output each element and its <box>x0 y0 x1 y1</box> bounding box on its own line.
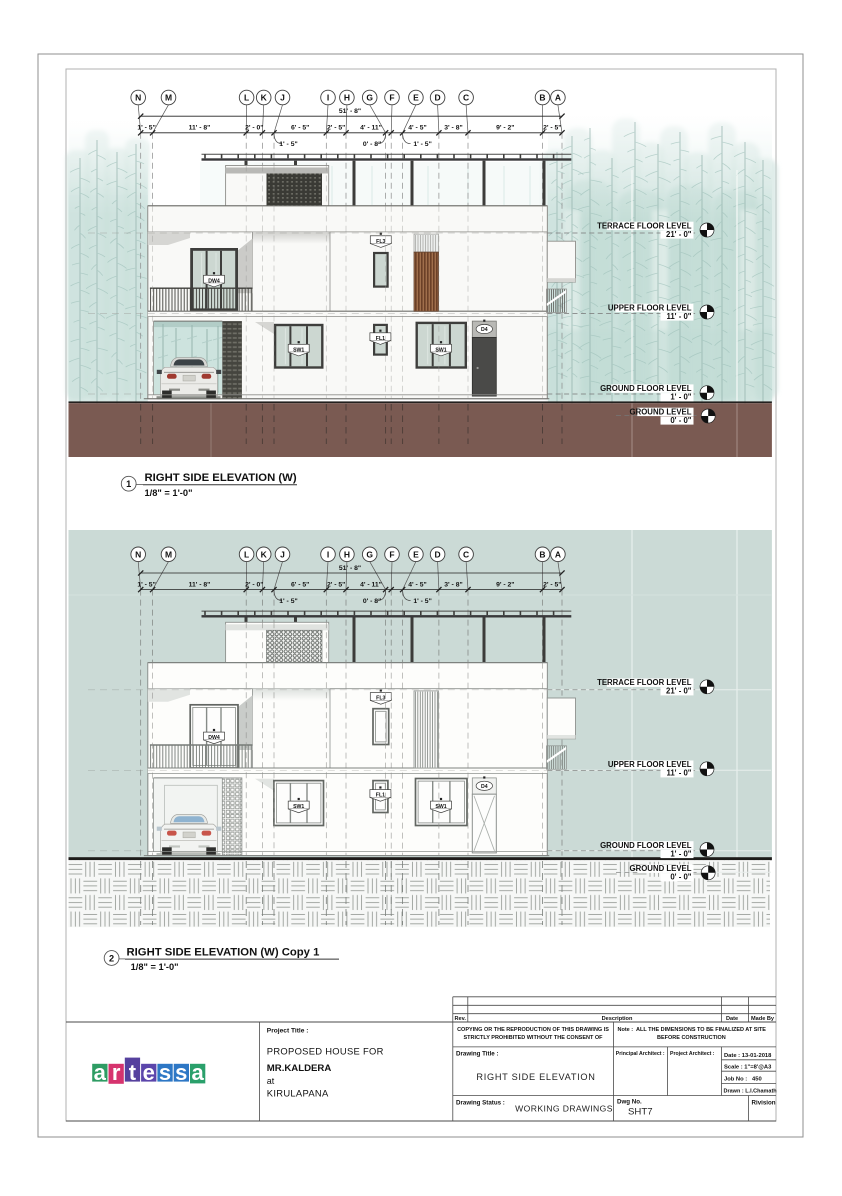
svg-text:4' - 11": 4' - 11" <box>360 581 382 588</box>
svg-text:9' - 2": 9' - 2" <box>496 581 514 588</box>
svg-text:I: I <box>327 549 329 559</box>
svg-text:a: a <box>191 1060 204 1085</box>
svg-text:K: K <box>261 549 268 559</box>
svg-text:2' - 5": 2' - 5" <box>543 125 561 132</box>
svg-text:ALL THE DIMENSIONS TO BE FINAL: ALL THE DIMENSIONS TO BE FINALIZED AT SI… <box>636 1027 766 1033</box>
svg-text:4' - 11": 4' - 11" <box>360 125 382 132</box>
svg-text:WORKING DRAWINGS: WORKING DRAWINGS <box>515 1104 613 1114</box>
svg-text:FL3: FL3 <box>376 696 385 702</box>
svg-text:B: B <box>539 549 545 559</box>
svg-text:1: 1 <box>126 479 131 489</box>
svg-text:2: 2 <box>109 953 114 963</box>
svg-text:Drawing Title :: Drawing Title : <box>456 1051 499 1058</box>
svg-text:DW4: DW4 <box>208 735 220 741</box>
svg-text:K: K <box>261 93 268 103</box>
svg-text:N: N <box>135 93 141 103</box>
svg-text:F: F <box>389 549 394 559</box>
svg-text:0' - 8": 0' - 8" <box>363 598 381 605</box>
svg-text:0' - 8": 0' - 8" <box>363 141 381 148</box>
svg-text:SW1: SW1 <box>435 347 446 353</box>
svg-text:4' - 5": 4' - 5" <box>408 581 426 588</box>
svg-text:Scale : 1"=8'@A3: Scale : 1"=8'@A3 <box>724 1065 772 1071</box>
svg-text:0' - 0": 0' - 0" <box>670 416 691 425</box>
svg-text:51' - 8": 51' - 8" <box>339 565 361 572</box>
svg-text:1' - 5": 1' - 5" <box>413 598 431 605</box>
svg-text:Made By: Made By <box>751 1016 775 1022</box>
svg-text:Drawn : L.I.Chamath: Drawn : L.I.Chamath <box>724 1089 778 1095</box>
svg-text:1' - 5": 1' - 5" <box>279 598 297 605</box>
svg-text:Note :: Note : <box>618 1027 634 1033</box>
svg-text:M: M <box>165 93 172 103</box>
svg-text:4' - 5": 4' - 5" <box>408 125 426 132</box>
svg-text:A: A <box>555 549 561 559</box>
svg-text:1' - 5": 1' - 5" <box>279 141 297 148</box>
svg-text:L: L <box>244 549 249 559</box>
svg-text:3' - 8": 3' - 8" <box>444 125 462 132</box>
svg-text:J: J <box>280 549 285 559</box>
svg-text:G: G <box>366 93 373 103</box>
svg-text:RIGHT SIDE ELEVATION: RIGHT SIDE ELEVATION <box>476 1072 595 1082</box>
svg-text:6' - 5": 6' - 5" <box>291 581 309 588</box>
svg-text:DW4: DW4 <box>208 278 220 284</box>
svg-text:RIGHT SIDE ELEVATION (W) Copy: RIGHT SIDE ELEVATION (W) Copy 1 <box>127 946 320 958</box>
svg-text:0' - 0": 0' - 0" <box>670 873 691 882</box>
svg-text:I: I <box>327 93 329 103</box>
svg-text:11' - 8": 11' - 8" <box>189 125 211 132</box>
svg-text:a: a <box>94 1060 107 1085</box>
svg-text:e: e <box>143 1060 155 1085</box>
svg-text:H: H <box>344 93 350 103</box>
svg-text:Project Architect :: Project Architect : <box>670 1051 715 1057</box>
svg-text:1' - 5": 1' - 5" <box>413 141 431 148</box>
svg-text:FL1: FL1 <box>376 793 385 799</box>
svg-text:Rev.: Rev. <box>455 1016 467 1022</box>
svg-text:2' - 5": 2' - 5" <box>543 581 561 588</box>
svg-text:Date: Date <box>726 1016 738 1022</box>
svg-text:C: C <box>463 93 469 103</box>
svg-text:STRICTLY PROHIBITED WITHOUT TH: STRICTLY PROHIBITED WITHOUT THE CONSENT … <box>463 1035 603 1041</box>
svg-text:D4: D4 <box>481 784 488 790</box>
svg-text:2' - 5": 2' - 5" <box>327 125 345 132</box>
svg-text:Principal Architect :: Principal Architect : <box>616 1051 665 1057</box>
svg-text:H: H <box>344 549 350 559</box>
svg-text:PROPOSED HOUSE FOR: PROPOSED HOUSE FOR <box>267 1046 384 1057</box>
svg-text:C: C <box>463 549 469 559</box>
svg-text:Description: Description <box>602 1016 633 1022</box>
svg-text:SW1: SW1 <box>435 804 446 810</box>
svg-text:SW1: SW1 <box>293 804 304 810</box>
svg-text:3' - 8": 3' - 8" <box>444 581 462 588</box>
svg-text:Rivision: Rivision <box>752 1100 776 1107</box>
svg-text:1' - 5": 1' - 5" <box>137 581 155 588</box>
svg-text:N: N <box>135 549 141 559</box>
svg-text:B: B <box>539 93 545 103</box>
svg-text:L: L <box>244 93 249 103</box>
svg-text:1' - 0": 1' - 0" <box>670 849 691 858</box>
svg-text:FL1: FL1 <box>376 336 385 342</box>
svg-text:Drawing Status :: Drawing Status : <box>456 1100 505 1107</box>
svg-text:1/8" = 1'-0": 1/8" = 1'-0" <box>131 962 179 972</box>
svg-text:Date : 13-01-2018: Date : 13-01-2018 <box>724 1053 772 1059</box>
svg-text:2' - 0": 2' - 0" <box>245 581 263 588</box>
svg-text:FL3: FL3 <box>376 239 385 245</box>
svg-text:Job No : 450: Job No : 450 <box>724 1077 762 1083</box>
svg-text:E: E <box>413 93 419 103</box>
svg-text:D4: D4 <box>481 327 488 333</box>
svg-text:BEFORE CONSTRUCTION: BEFORE CONSTRUCTION <box>657 1035 726 1041</box>
svg-text:2' - 0": 2' - 0" <box>245 125 263 132</box>
svg-text:6' - 5": 6' - 5" <box>291 125 309 132</box>
svg-text:MR.KALDERA: MR.KALDERA <box>267 1063 332 1074</box>
svg-text:at: at <box>267 1076 275 1086</box>
svg-text:21' - 0": 21' - 0" <box>666 687 692 696</box>
svg-text:r: r <box>112 1060 121 1085</box>
svg-text:t: t <box>129 1060 137 1085</box>
svg-text:G: G <box>366 549 373 559</box>
svg-text:Dwg No.: Dwg No. <box>617 1099 642 1106</box>
svg-text:1' - 0": 1' - 0" <box>670 393 691 402</box>
svg-text:SHT7: SHT7 <box>628 1107 653 1118</box>
svg-text:9' - 2": 9' - 2" <box>496 125 514 132</box>
svg-text:F: F <box>389 93 394 103</box>
svg-text:11' - 8": 11' - 8" <box>189 581 211 588</box>
svg-text:11' - 0": 11' - 0" <box>666 769 691 778</box>
svg-text:1/8" = 1'-0": 1/8" = 1'-0" <box>145 488 193 498</box>
svg-text:51' - 8": 51' - 8" <box>339 108 361 115</box>
svg-text:s: s <box>159 1060 171 1085</box>
svg-text:11' - 0": 11' - 0" <box>666 312 691 321</box>
svg-text:RIGHT SIDE ELEVATION (W): RIGHT SIDE ELEVATION (W) <box>145 472 297 484</box>
svg-text:21' - 0": 21' - 0" <box>666 230 692 239</box>
svg-text:2' - 5": 2' - 5" <box>327 581 345 588</box>
svg-text:E: E <box>413 549 419 559</box>
svg-text:COPYING OR THE REPRODUCTION OF: COPYING OR THE REPRODUCTION OF THIS DRAW… <box>457 1027 609 1033</box>
svg-text:KIRULAPANA: KIRULAPANA <box>267 1087 329 1098</box>
svg-text:A: A <box>555 93 561 103</box>
svg-text:1' - 5": 1' - 5" <box>137 125 155 132</box>
svg-text:J: J <box>280 93 285 103</box>
svg-text:s: s <box>175 1060 187 1085</box>
svg-text:D: D <box>435 93 441 103</box>
svg-text:SW1: SW1 <box>293 347 304 353</box>
svg-text:D: D <box>435 549 441 559</box>
svg-text:M: M <box>165 549 172 559</box>
svg-text:Project Title :: Project Title : <box>267 1028 309 1035</box>
